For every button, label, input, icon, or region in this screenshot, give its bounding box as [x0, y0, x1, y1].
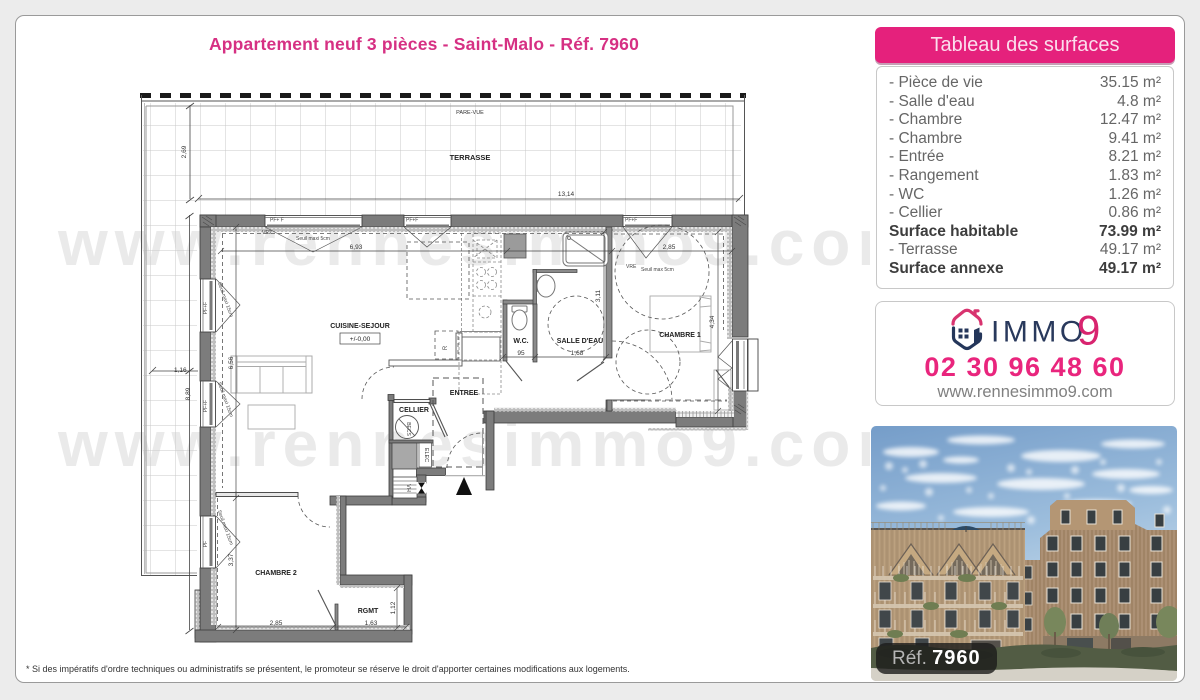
svg-text:VH: VH — [405, 484, 411, 492]
svg-text:VRE: VRE — [626, 264, 637, 270]
svg-text:1,16: 1,16 — [174, 367, 187, 374]
svg-text:2,69: 2,69 — [181, 145, 188, 158]
svg-text:13,14: 13,14 — [558, 191, 575, 198]
svg-text:PF+ F: PF+ F — [270, 218, 284, 224]
svg-text:2,85: 2,85 — [270, 620, 283, 627]
svg-text:PF+F: PF+F — [625, 218, 637, 224]
svg-text:3,37: 3,37 — [228, 553, 235, 566]
svg-text:95: 95 — [517, 350, 525, 357]
svg-text:SALLE D'EAU: SALLE D'EAU — [557, 338, 603, 345]
svg-text:9: 9 — [1077, 308, 1100, 352]
svg-text:R: R — [443, 345, 449, 350]
svg-text:VR2: VR2 — [262, 230, 272, 236]
svg-text:Seuil maxi 5cm: Seuil maxi 5cm — [296, 236, 330, 242]
svg-text:8,89: 8,89 — [185, 387, 192, 400]
svg-text:PF: PF — [203, 541, 209, 547]
svg-text:4,34: 4,34 — [709, 315, 716, 328]
svg-text:1,12: 1,12 — [390, 601, 397, 614]
svg-text:PF+F: PF+F — [406, 218, 418, 224]
svg-text:6,93: 6,93 — [350, 244, 363, 251]
svg-text:3,11: 3,11 — [595, 290, 602, 303]
svg-text:Seuil max 5cm: Seuil max 5cm — [641, 267, 674, 273]
svg-text:CUISINE-SEJOUR: CUISINE-SEJOUR — [330, 323, 390, 330]
svg-text:W.C.: W.C. — [513, 338, 528, 345]
svg-text:CHAMBRE 2: CHAMBRE 2 — [255, 570, 297, 577]
svg-text:ENTREE: ENTREE — [450, 390, 479, 397]
svg-text:2,85: 2,85 — [663, 244, 676, 251]
svg-text:CELLIER: CELLIER — [399, 407, 429, 414]
svg-text:CHAMBRE 1: CHAMBRE 1 — [659, 332, 701, 339]
svg-text:1,68: 1,68 — [571, 350, 584, 357]
svg-text:RGMT: RGMT — [358, 608, 379, 615]
svg-text:IMMO: IMMO — [991, 316, 1087, 349]
svg-text:+/-0,00: +/-0,00 — [350, 336, 371, 343]
svg-text:BECS: BECS — [405, 422, 411, 436]
svg-text:1,63: 1,63 — [365, 620, 378, 627]
svg-text:PARE-VUE: PARE-VUE — [456, 110, 484, 116]
svg-text:6,56: 6,56 — [228, 356, 235, 369]
svg-text:PF+F: PF+F — [203, 400, 209, 412]
svg-text:PF+F: PF+F — [203, 302, 209, 314]
svg-text:Seuil maxi 15cm: Seuil maxi 15cm — [216, 281, 234, 318]
svg-text:Seuil maxi 15cm: Seuil maxi 15cm — [216, 509, 234, 546]
svg-text:ELEC: ELEC — [423, 448, 429, 462]
svg-text:TERRASSE: TERRASSE — [450, 153, 491, 162]
